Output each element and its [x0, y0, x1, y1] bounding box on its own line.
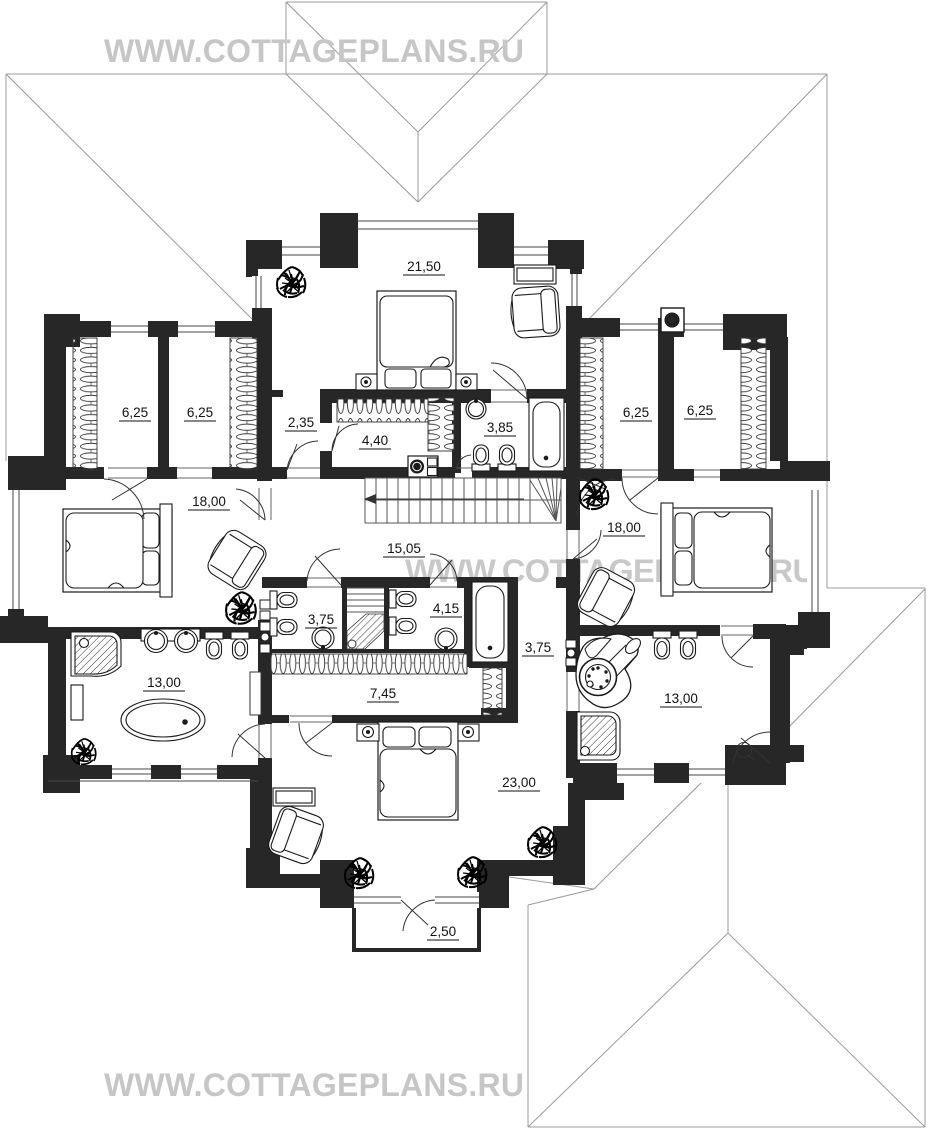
svg-text:6,25: 6,25: [687, 403, 713, 418]
svg-text:6,25: 6,25: [187, 405, 213, 420]
svg-text:2,35: 2,35: [288, 415, 314, 430]
svg-text:3,85: 3,85: [487, 420, 513, 435]
svg-text:21,50: 21,50: [407, 259, 441, 274]
svg-text:3,75: 3,75: [308, 612, 334, 627]
svg-text:WWW.COTTAGEPLANS.RU: WWW.COTTAGEPLANS.RU: [104, 1067, 524, 1103]
svg-text:13,00: 13,00: [147, 675, 181, 690]
svg-text:13,00: 13,00: [664, 691, 698, 706]
svg-text:6,25: 6,25: [122, 405, 148, 420]
svg-text:7,45: 7,45: [370, 686, 396, 701]
svg-text:18,00: 18,00: [607, 520, 641, 535]
svg-text:18,00: 18,00: [192, 494, 226, 509]
svg-text:3,75: 3,75: [525, 640, 551, 655]
svg-text:WWW.COTTAGEPLANS.RU: WWW.COTTAGEPLANS.RU: [104, 33, 524, 69]
svg-text:6,25: 6,25: [623, 405, 649, 420]
svg-text:15,05: 15,05: [387, 541, 421, 556]
svg-text:4,15: 4,15: [433, 601, 459, 616]
svg-text:23,00: 23,00: [502, 775, 536, 790]
svg-text:2,50: 2,50: [430, 924, 456, 939]
svg-text:4,40: 4,40: [362, 433, 388, 448]
